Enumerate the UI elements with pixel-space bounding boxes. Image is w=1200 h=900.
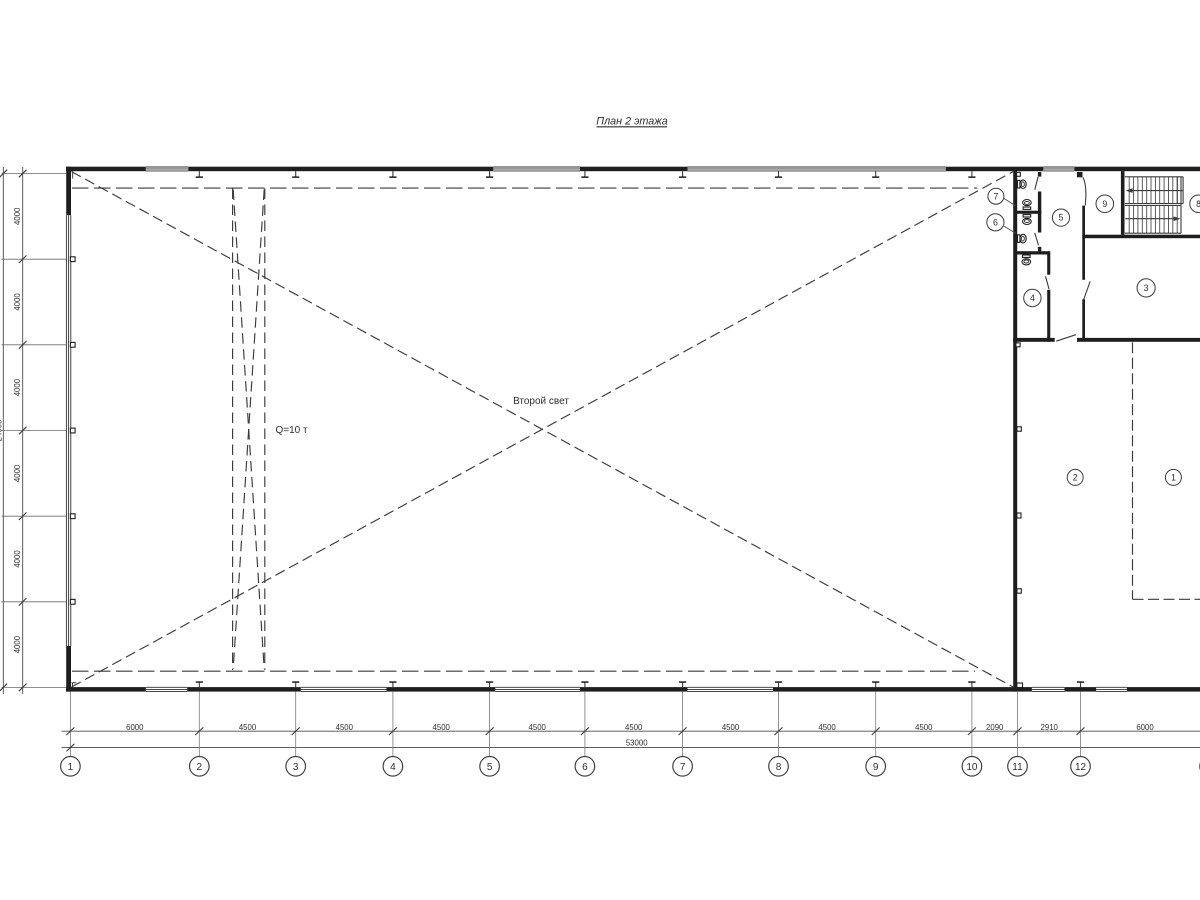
svg-text:4000: 4000 (13, 378, 22, 396)
svg-text:2: 2 (1073, 473, 1078, 483)
svg-text:Второй свет: Второй свет (513, 396, 569, 407)
svg-text:7: 7 (680, 762, 686, 773)
svg-text:План 2 этажа: План 2 этажа (596, 115, 667, 127)
svg-text:3: 3 (1144, 283, 1149, 293)
svg-text:1: 1 (1171, 473, 1176, 483)
svg-text:1: 1 (68, 762, 74, 773)
svg-text:6000: 6000 (126, 723, 144, 732)
svg-text:8: 8 (776, 762, 782, 773)
svg-text:6: 6 (993, 217, 998, 227)
svg-text:11: 11 (1012, 762, 1023, 773)
svg-text:4: 4 (1030, 293, 1035, 303)
svg-text:4000: 4000 (13, 464, 22, 482)
svg-text:2090: 2090 (986, 723, 1004, 732)
svg-text:12: 12 (1075, 762, 1087, 773)
svg-text:9: 9 (873, 762, 879, 773)
svg-text:4: 4 (390, 762, 396, 773)
svg-text:8: 8 (1196, 199, 1200, 209)
svg-text:4500: 4500 (433, 723, 451, 732)
svg-text:4000: 4000 (13, 207, 22, 225)
svg-text:4500: 4500 (625, 723, 643, 732)
svg-text:4500: 4500 (915, 723, 933, 732)
svg-text:2910: 2910 (1041, 723, 1059, 732)
svg-text:4500: 4500 (239, 723, 257, 732)
svg-text:5: 5 (487, 762, 493, 773)
svg-text:5: 5 (1059, 213, 1064, 223)
svg-text:4000: 4000 (13, 550, 22, 568)
svg-text:6000: 6000 (1136, 723, 1154, 732)
svg-text:Q=10 т: Q=10 т (276, 425, 309, 436)
svg-text:4500: 4500 (336, 723, 354, 732)
svg-text:4500: 4500 (818, 723, 836, 732)
svg-text:24000: 24000 (0, 419, 4, 441)
svg-text:4000: 4000 (13, 635, 22, 653)
svg-text:2: 2 (197, 762, 203, 773)
svg-text:53000: 53000 (626, 739, 648, 748)
svg-text:10: 10 (966, 762, 978, 773)
svg-text:3: 3 (293, 762, 299, 773)
svg-text:7: 7 (993, 191, 998, 201)
svg-text:6: 6 (582, 762, 588, 773)
svg-text:4500: 4500 (722, 723, 740, 732)
svg-text:4000: 4000 (13, 293, 22, 311)
svg-text:9: 9 (1102, 199, 1107, 209)
svg-text:4500: 4500 (529, 723, 547, 732)
